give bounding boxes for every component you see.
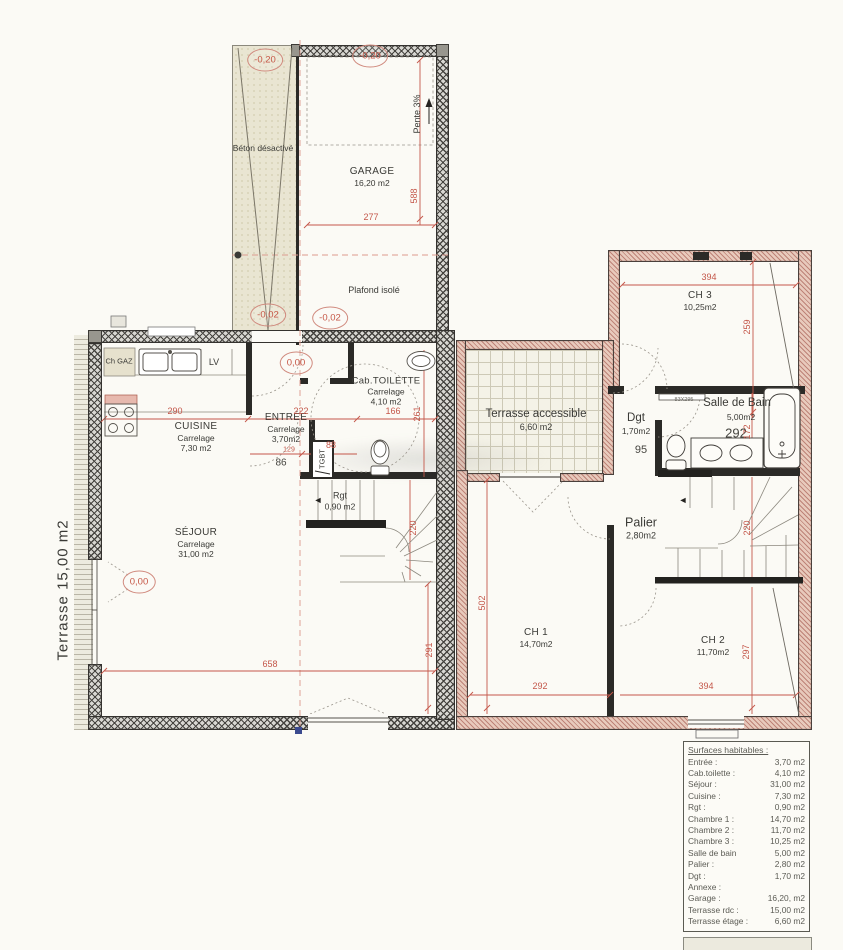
legend-row: Dgt :1,70 m2 bbox=[688, 871, 805, 882]
room-name: GARAGE bbox=[350, 166, 395, 178]
legend-label: Séjour : bbox=[688, 779, 717, 790]
surface-legend-table: Surfaces habitables : Entrée :3,70 m2 Ca… bbox=[683, 741, 810, 932]
dim-sejour-width: 658 bbox=[262, 659, 277, 669]
rgt-arrow-icon: ◄ bbox=[314, 495, 323, 505]
room-finish: Carrelage bbox=[352, 387, 421, 397]
bay-window-glazing bbox=[92, 558, 97, 666]
plafond-label: Plafond isolé bbox=[348, 285, 400, 295]
dim-ch2-depth: 297 bbox=[741, 644, 751, 659]
level-badge: 0,00 bbox=[123, 571, 156, 594]
washbasin-icon bbox=[407, 352, 435, 371]
legend-row: Terrasse étage :6,60 m2 bbox=[688, 916, 805, 927]
stair-rail bbox=[306, 520, 386, 528]
legend-value: 15,00 m2 bbox=[770, 905, 805, 916]
legend-row: Annexe : bbox=[688, 882, 805, 893]
kitchen-sink-icon bbox=[139, 349, 201, 375]
legend-label: Terrasse étage : bbox=[688, 916, 748, 927]
room-area: 6,60 m2 bbox=[486, 421, 587, 432]
room-name: Dgt bbox=[622, 412, 650, 426]
room-finish: Carrelage bbox=[265, 424, 307, 434]
boiler-label: Ch GAZ bbox=[105, 357, 132, 366]
stair-rail bbox=[658, 470, 712, 477]
legend-value: 6,60 m2 bbox=[775, 916, 805, 927]
legend-row: Garage :16,20, m2 bbox=[688, 893, 805, 904]
legend-value: 10,25 m2 bbox=[770, 836, 805, 847]
legend-label: Cuisine : bbox=[688, 791, 721, 802]
room-label-sejour: SÉJOUR Carrelage 31,00 m2 bbox=[175, 527, 217, 559]
level-badge: -0,20 bbox=[247, 49, 283, 72]
room-finish: Carrelage bbox=[175, 433, 218, 443]
dim-sejour-depth: 291 bbox=[424, 642, 434, 657]
room-label-ch2: CH 2 11,70m2 bbox=[697, 635, 729, 657]
room-finish: Carrelage bbox=[175, 539, 217, 549]
dim-stairs-ground: 220 bbox=[408, 520, 418, 535]
room-label-garage: GARAGE 16,20 m2 bbox=[350, 166, 395, 188]
vent-box bbox=[111, 316, 126, 327]
legend-label: Chambre 3 : bbox=[688, 836, 734, 847]
legend-value: 2,80 m2 bbox=[775, 859, 805, 870]
room-name: Terrasse accessible bbox=[486, 408, 587, 422]
legend-row: Terrasse rdc :15,00 m2 bbox=[688, 905, 805, 916]
slope-lines bbox=[770, 263, 799, 715]
room-area: 2,80m2 bbox=[625, 530, 657, 541]
room-label-terrasse-accessible: Terrasse accessible 6,60 m2 bbox=[486, 408, 587, 432]
toilet-icon-ground bbox=[371, 440, 389, 475]
level-badge: -0,02 bbox=[250, 304, 286, 327]
level-badge: 0,00 bbox=[280, 352, 313, 375]
room-label-ch1: CH 1 14,70m2 bbox=[519, 627, 552, 649]
legend-value: 14,70 m2 bbox=[770, 814, 805, 825]
legend-row: Chambre 1 :14,70 m2 bbox=[688, 814, 805, 825]
legend-label: Salle de bain bbox=[688, 848, 736, 859]
room-label-palier: Palier 2,80m2 bbox=[625, 515, 657, 540]
cropped-stamp-fragment bbox=[683, 937, 812, 950]
legend-row: Salle de bain5,00 m2 bbox=[688, 848, 805, 859]
legend-row: Cab.toilette :4,10 m2 bbox=[688, 768, 805, 779]
survey-dot bbox=[235, 252, 242, 259]
dishwasher-label: LV bbox=[209, 357, 219, 367]
legend-label: Cab.toilette : bbox=[688, 768, 735, 779]
room-label-cuisine: CUISINE Carrelage 7,30 m2 bbox=[175, 421, 218, 453]
toilet-icon-upper bbox=[666, 435, 686, 470]
room-label-dgt: Dgt 1,70m2 bbox=[622, 412, 650, 436]
dim-dgt-width: 95 bbox=[635, 444, 647, 456]
closet-size-label: 83X295 bbox=[675, 397, 694, 403]
legend-value: 16,20, m2 bbox=[768, 893, 805, 904]
dim-sdb-depth: 172 bbox=[742, 424, 752, 439]
room-label-rgt: Rgt 0,90 m2 bbox=[325, 491, 356, 512]
pente-label: Pente 3% bbox=[412, 94, 422, 133]
legend-value: 1,70 m2 bbox=[775, 871, 805, 882]
pente-arrow-icon bbox=[426, 98, 433, 124]
legend-value: 7,30 m2 bbox=[775, 791, 805, 802]
dim-garage-width: 277 bbox=[363, 212, 378, 222]
dim-garage-depth: 588 bbox=[409, 188, 419, 203]
legend-row: Rgt :0,90 m2 bbox=[688, 802, 805, 813]
tgbt-label: TGBT bbox=[318, 449, 327, 469]
room-name: CH 2 bbox=[697, 635, 729, 647]
room-area: 14,70m2 bbox=[519, 639, 552, 649]
room-name: CUISINE bbox=[175, 421, 218, 433]
legend-row: Entrée :3,70 m2 bbox=[688, 757, 805, 768]
room-label-entree: ENTRÉE Carrelage 3,70m2 bbox=[265, 412, 307, 444]
room-area: 7,30 m2 bbox=[175, 443, 218, 453]
kitchen-window bbox=[148, 327, 195, 336]
legend-row: Palier :2,80 m2 bbox=[688, 859, 805, 870]
terrasse-rdc-label: Terrasse 15,00 m2 bbox=[55, 519, 72, 660]
dim-ch3-depth: 259 bbox=[742, 319, 752, 334]
dim-entree-door: 86 bbox=[275, 458, 286, 469]
legend-label: Annexe : bbox=[688, 882, 721, 893]
room-area: 1,70m2 bbox=[622, 426, 650, 436]
double-sink-vanity-icon bbox=[691, 438, 763, 468]
stairs-up-arrow-icon: ◄ bbox=[679, 495, 688, 505]
legend-row: Cuisine :7,30 m2 bbox=[688, 791, 805, 802]
room-label-cab-toilette: Cab.TOILETTE Carrelage 4,10 m2 bbox=[352, 375, 421, 406]
legend-label: Garage : bbox=[688, 893, 721, 904]
room-name: Rgt bbox=[325, 491, 356, 502]
dim-cuisine: 290 bbox=[167, 406, 182, 416]
sejour-window bbox=[308, 714, 388, 730]
room-area-sdb: 5,00m2 bbox=[727, 412, 755, 422]
legend-value: 0,90 m2 bbox=[775, 802, 805, 813]
level-badge: -0,02 bbox=[312, 307, 348, 330]
oven-icon bbox=[105, 395, 137, 404]
legend-label: Chambre 2 : bbox=[688, 825, 734, 836]
legend-label: Chambre 1 : bbox=[688, 814, 734, 825]
legend-label: Rgt : bbox=[688, 802, 706, 813]
legend-title: Surfaces habitables : bbox=[688, 745, 805, 755]
dim-ch2-width: 394 bbox=[698, 681, 713, 691]
dim-niche: 88 bbox=[326, 440, 336, 450]
legend-value: 5,00 m2 bbox=[775, 848, 805, 859]
dim-stairs-upper: 220 bbox=[742, 520, 752, 535]
room-area: 11,70m2 bbox=[697, 647, 729, 657]
blue-marker bbox=[295, 727, 302, 734]
room-area: 31,00 m2 bbox=[175, 549, 217, 559]
legend-row: Séjour :31,00 m2 bbox=[688, 779, 805, 790]
room-label-sdb: Salle de Bain bbox=[703, 397, 771, 409]
legend-row: Chambre 2 :11,70 m2 bbox=[688, 825, 805, 836]
room-area: 3,70m2 bbox=[265, 434, 307, 444]
room-name: Palier bbox=[625, 515, 657, 530]
beton-joint-lines bbox=[238, 48, 292, 330]
room-name: CH 1 bbox=[519, 627, 552, 639]
room-name: Cab.TOILETTE bbox=[352, 375, 421, 386]
ch2-window bbox=[688, 716, 744, 738]
dim-ch1-width: 292 bbox=[532, 681, 547, 691]
stairs-upper-floor bbox=[665, 477, 798, 583]
dim-ch1-depth: 502 bbox=[477, 595, 487, 610]
room-area: 10,25m2 bbox=[683, 302, 716, 312]
legend-label: Terrasse rdc : bbox=[688, 905, 739, 916]
dim-ch3-width: 394 bbox=[701, 272, 716, 282]
legend-value: 31,00 m2 bbox=[770, 779, 805, 790]
floor-plan-canvas: -0,20 -0,20 -0,02 -0,02 0,00 0,00 Béton … bbox=[0, 0, 843, 950]
cooktop-icon bbox=[105, 404, 137, 436]
legend-label: Dgt : bbox=[688, 871, 706, 882]
beton-label: Béton désactivé bbox=[233, 143, 293, 153]
legend-label: Entrée : bbox=[688, 757, 717, 768]
dim-wc-depth: 261 bbox=[412, 406, 422, 421]
room-name: SÉJOUR bbox=[175, 527, 217, 539]
level-badge: -0,20 bbox=[352, 45, 388, 68]
legend-value: 3,70 m2 bbox=[775, 757, 805, 768]
legend-label: Palier : bbox=[688, 859, 714, 870]
legend-value: 11,70 m2 bbox=[771, 825, 805, 836]
room-name: CH 3 bbox=[683, 290, 716, 302]
legend-row: Chambre 3 :10,25 m2 bbox=[688, 836, 805, 847]
dim-wc-width: 166 bbox=[385, 406, 400, 416]
dim-entree: 222 bbox=[293, 406, 308, 416]
legend-value: 4,10 m2 bbox=[775, 768, 805, 779]
room-area: 16,20 m2 bbox=[350, 178, 395, 188]
stair-rail bbox=[655, 577, 803, 584]
room-area: 0,90 m2 bbox=[325, 501, 356, 511]
room-label-ch3: CH 3 10,25m2 bbox=[683, 290, 716, 312]
dim-entree-b: 129 bbox=[283, 447, 295, 454]
